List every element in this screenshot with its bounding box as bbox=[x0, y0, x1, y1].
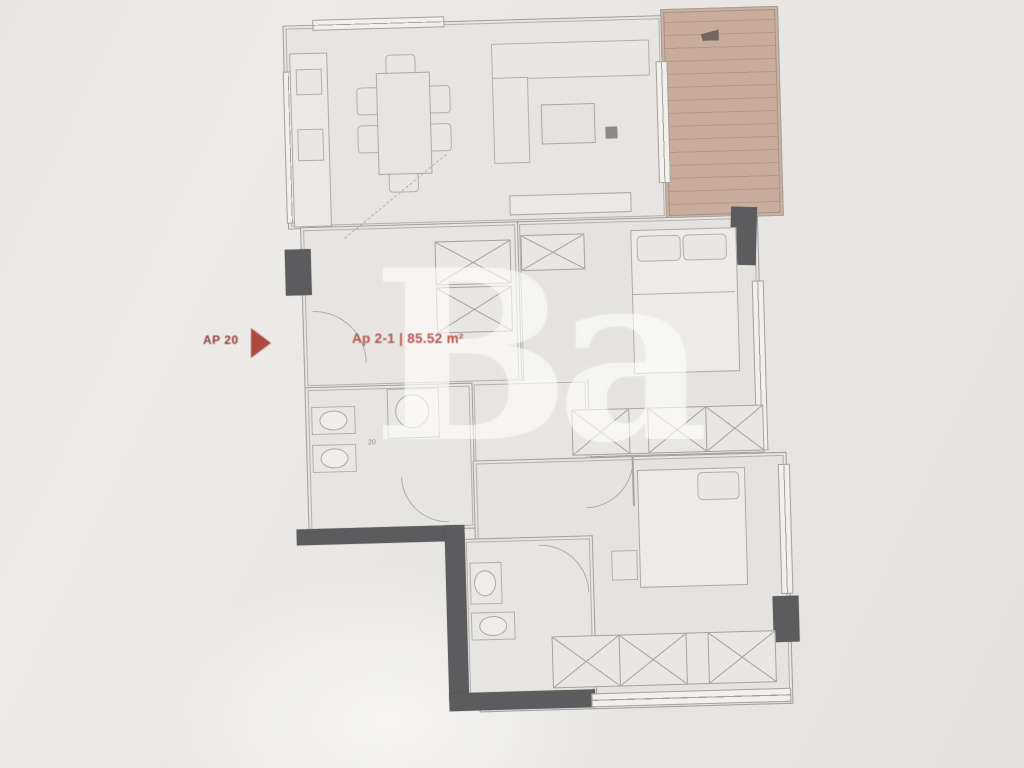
wardrobe-cell bbox=[572, 409, 631, 455]
hall-wardrobe bbox=[434, 239, 511, 285]
side-table bbox=[605, 126, 617, 138]
wardrobe-cell bbox=[553, 636, 621, 688]
bedroom2-wardrobe bbox=[552, 630, 777, 688]
wall-bottom-left-horizontal bbox=[296, 525, 460, 546]
wardrobe-cell bbox=[649, 407, 708, 453]
kitchen-sink bbox=[296, 69, 323, 96]
wardrobe-cell bbox=[709, 631, 776, 683]
sofa bbox=[491, 39, 650, 79]
kitchen-cooktop bbox=[297, 129, 324, 162]
wall-column-bedroom2 bbox=[773, 596, 800, 643]
hall-wardrobe bbox=[436, 285, 513, 333]
tv-cabinet bbox=[509, 192, 632, 215]
wardrobe-cell bbox=[630, 409, 650, 454]
pillow bbox=[636, 235, 681, 262]
bedroom1-dresser bbox=[520, 233, 585, 271]
dining-chair bbox=[428, 85, 451, 114]
unit-badge: AP 20 bbox=[203, 333, 239, 347]
nightstand bbox=[611, 550, 638, 581]
wardrobe-cell bbox=[706, 405, 764, 451]
unit-area-label: Ap 2-1 | 85.52 m² bbox=[352, 331, 464, 346]
floor-plan: 20 20 bbox=[272, 0, 812, 742]
wardrobe-cell bbox=[620, 634, 688, 686]
dining-table bbox=[376, 72, 433, 175]
dimension-mark: 20 bbox=[368, 439, 376, 446]
pillow bbox=[682, 233, 727, 260]
wall-column-entry bbox=[285, 249, 312, 296]
sofa-chaise bbox=[492, 77, 530, 164]
window-bedroom2-right bbox=[778, 464, 794, 594]
wardrobe-cell bbox=[686, 633, 709, 684]
pillow bbox=[697, 471, 740, 500]
entry-arrow-icon bbox=[251, 328, 271, 358]
coffee-table bbox=[541, 103, 596, 144]
dining-chair bbox=[429, 123, 452, 152]
bedroom1-wardrobe bbox=[571, 404, 764, 455]
terrace bbox=[660, 6, 784, 219]
